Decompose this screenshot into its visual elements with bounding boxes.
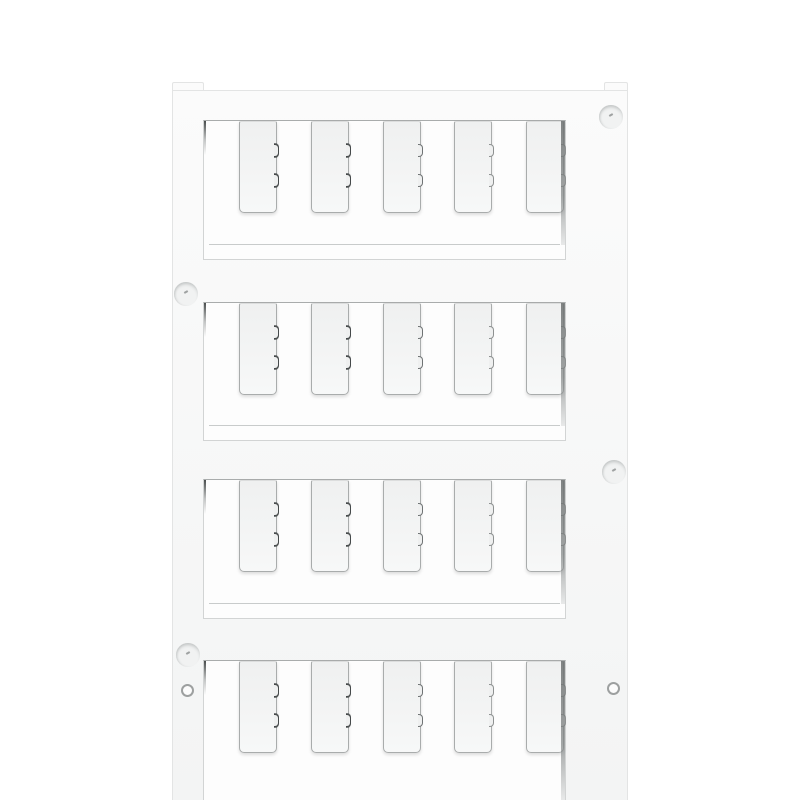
tag-notch [274, 533, 279, 546]
marker-tag [311, 303, 349, 395]
tag-notch [346, 714, 351, 727]
mold-pin [176, 643, 200, 667]
tag-notch [489, 144, 494, 157]
tag-notch [418, 174, 423, 187]
marker-tag [383, 661, 421, 753]
mounting-hole [607, 682, 620, 695]
window-ledge [209, 425, 560, 426]
mold-pin [599, 105, 623, 129]
marker-tag [526, 661, 564, 753]
tag-notch [274, 503, 279, 516]
marker-tag [311, 121, 349, 213]
tag-notch [274, 144, 279, 157]
marker-tag [454, 480, 492, 572]
tag-notch [346, 533, 351, 546]
tag-notch [346, 684, 351, 697]
marker-window-row-1 [203, 120, 566, 260]
tag-notch [274, 326, 279, 339]
tag-notch [561, 144, 566, 157]
marker-window-row-2 [203, 302, 566, 441]
tag-notch [561, 503, 566, 516]
marker-window-row-4 [203, 660, 566, 800]
tag-notch [561, 174, 566, 187]
marker-tag [526, 480, 564, 572]
tag-notch [561, 326, 566, 339]
marker-tag [239, 303, 277, 395]
window-ledge [209, 603, 560, 604]
marker-tag [526, 303, 564, 395]
tag-notch [274, 714, 279, 727]
tag-notch [346, 174, 351, 187]
tag-notch [418, 684, 423, 697]
tag-notch [489, 684, 494, 697]
tag-notch [274, 356, 279, 369]
marker-tag [383, 303, 421, 395]
tag-notch [346, 144, 351, 157]
tag-notch [489, 503, 494, 516]
marker-tag [239, 480, 277, 572]
tag-notch [418, 356, 423, 369]
tag-notch [561, 533, 566, 546]
tag-notch [489, 714, 494, 727]
window-ledge [209, 244, 560, 245]
tag-notch [561, 356, 566, 369]
marker-tag [383, 121, 421, 213]
marker-window-row-3 [203, 479, 566, 619]
tag-notch [489, 326, 494, 339]
tag-notch [418, 714, 423, 727]
marker-tag [454, 121, 492, 213]
tag-notch [418, 503, 423, 516]
marker-tag [311, 480, 349, 572]
tag-notch [346, 326, 351, 339]
tag-notch [561, 714, 566, 727]
tag-notch [274, 684, 279, 697]
marker-card [172, 82, 628, 800]
marker-tag [383, 480, 421, 572]
mold-pin [174, 282, 198, 306]
tag-notch [418, 326, 423, 339]
tag-notch [489, 174, 494, 187]
marker-tag [239, 121, 277, 213]
marker-tag [454, 303, 492, 395]
tag-notch [561, 684, 566, 697]
mold-pin [602, 460, 626, 484]
marker-tag [311, 661, 349, 753]
marker-tag [239, 661, 277, 753]
marker-tag [454, 661, 492, 753]
product-photo [0, 0, 800, 800]
mounting-hole [181, 684, 194, 697]
tag-notch [418, 533, 423, 546]
tag-notch [346, 503, 351, 516]
tag-notch [418, 144, 423, 157]
tag-notch [489, 533, 494, 546]
marker-tag [526, 121, 564, 213]
tag-notch [274, 174, 279, 187]
tag-notch [489, 356, 494, 369]
tag-notch [346, 356, 351, 369]
